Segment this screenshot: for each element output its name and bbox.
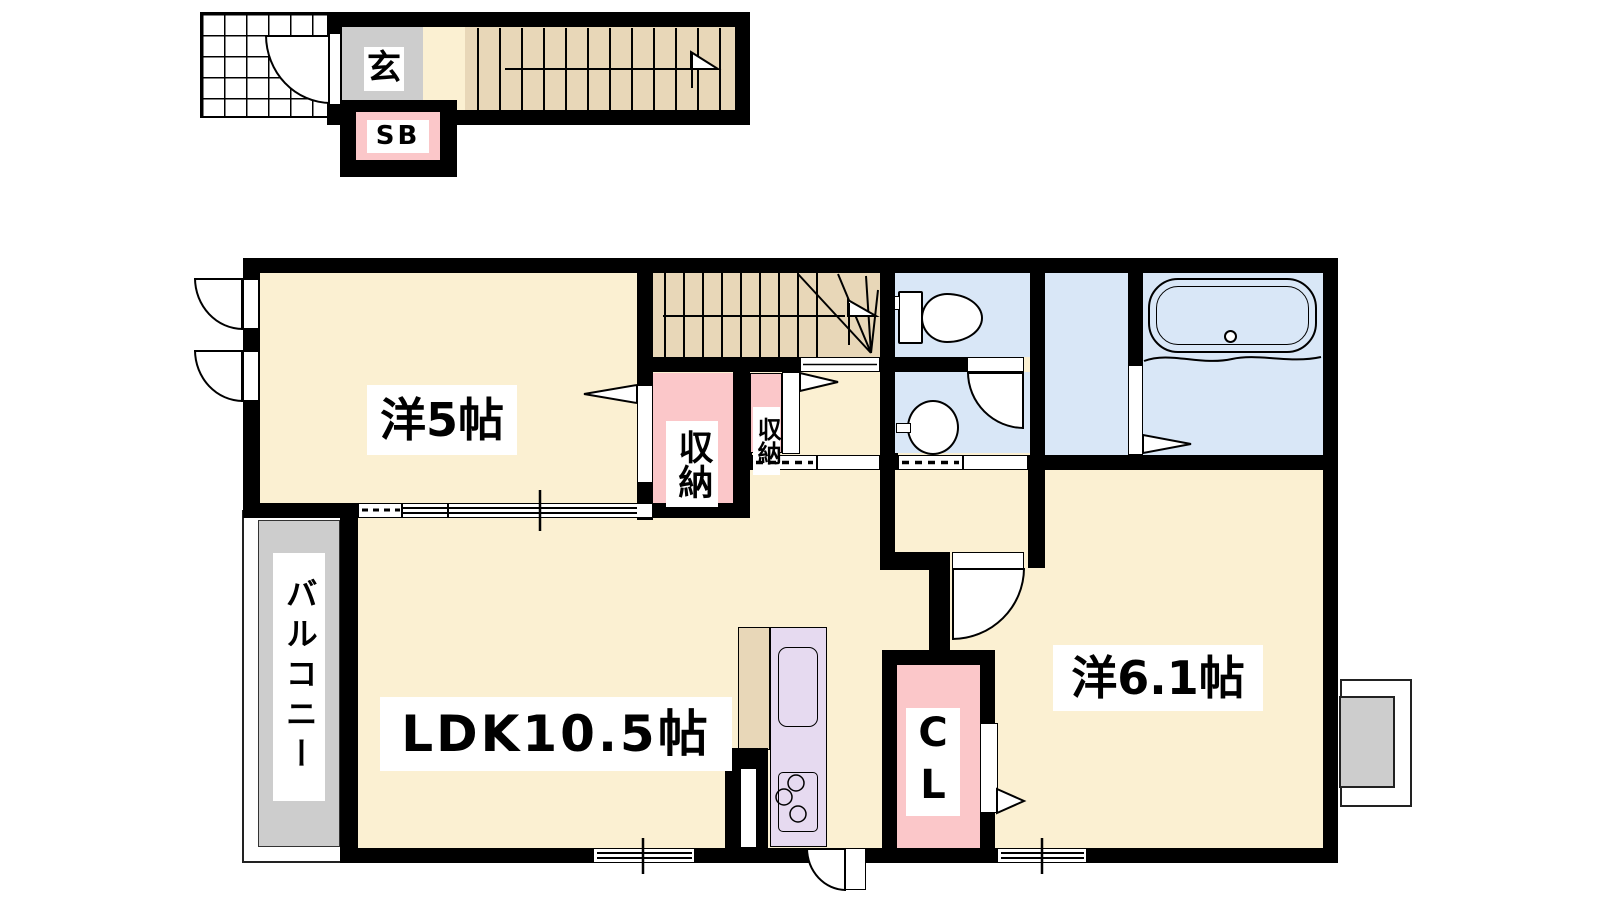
entrance-label: 玄 xyxy=(364,47,404,91)
washbasin-slider xyxy=(898,455,963,470)
casement-window-leaf-1 xyxy=(242,278,260,330)
ldk-label: LDK10.5帖 xyxy=(380,697,732,771)
western5-label: 洋5帖 xyxy=(367,385,517,455)
storage-small-label: 収納 xyxy=(753,407,780,475)
wall-ldk-room6-horiz xyxy=(890,552,950,570)
casement-window-arc-2 xyxy=(194,350,243,402)
wall-top xyxy=(243,258,1338,273)
room6-door-leaf xyxy=(952,552,1024,569)
understairs-opening xyxy=(800,357,880,372)
wall-west5-bottom-left xyxy=(243,503,358,518)
service-door-leaf xyxy=(845,848,866,890)
kitchen-stove xyxy=(778,772,818,832)
kitchen-sink xyxy=(778,647,818,727)
stairs-1f xyxy=(465,27,735,110)
washbasin-faucet xyxy=(896,423,911,433)
kitchen-nook-opening xyxy=(740,768,757,848)
balcony-label: バルコニー xyxy=(273,553,325,801)
west5-sliding-window xyxy=(358,503,653,518)
wall-bit-a xyxy=(733,453,752,470)
closet-door-leaf xyxy=(980,723,998,813)
washbasin xyxy=(907,400,959,455)
service-pad xyxy=(1339,696,1395,788)
closet-label: CL xyxy=(906,708,960,816)
wall-ldk-room6-stub xyxy=(929,570,950,653)
wall-bath-left xyxy=(1128,273,1143,365)
casement-window-arc-1 xyxy=(194,278,243,330)
ldk-bottom-window xyxy=(593,848,695,863)
storage-large-door-leaf xyxy=(637,385,653,483)
western6-label: 洋6.1帖 xyxy=(1053,645,1263,711)
toilet-tank xyxy=(898,291,923,344)
service-door-arc xyxy=(806,848,846,891)
casement-window-leaf-2 xyxy=(242,350,260,402)
shoebox-label: SB xyxy=(367,120,429,153)
bath-door-leaf xyxy=(1128,365,1143,455)
washbasin-opening xyxy=(963,455,1028,470)
wall-bit-b xyxy=(880,453,898,470)
entrance-door-leaf xyxy=(328,32,342,106)
toilet-door-leaf xyxy=(967,357,1024,372)
bathtub-drain xyxy=(1224,330,1237,343)
wall-hall-left xyxy=(880,273,895,570)
wall-room6-door-jamb xyxy=(1028,455,1045,568)
room6-bottom-window xyxy=(997,848,1087,863)
storage-small-door-leaf xyxy=(782,372,800,454)
wall-right xyxy=(1323,258,1338,863)
kitchen-cabinet xyxy=(738,627,770,750)
wall-room6-top xyxy=(1028,455,1338,470)
stairs-2f xyxy=(652,273,880,357)
wall-toilet-bottom xyxy=(880,357,970,372)
wall-storage-right xyxy=(733,357,750,517)
storage-large-label: 収納 xyxy=(666,421,718,507)
entrance-hall-strip xyxy=(423,27,465,110)
floor-plan: 玄 SB 洋5帖 収納 収納 LDK10.5帖 洋6.1帖 CL バルコニー xyxy=(0,0,1600,900)
hall-opening xyxy=(817,455,880,470)
washroom-corridor xyxy=(1045,273,1128,455)
wall-stairs-bottom xyxy=(637,357,800,372)
wall-balcony-ldk xyxy=(340,510,358,848)
wall-washroom-left xyxy=(1030,273,1045,455)
